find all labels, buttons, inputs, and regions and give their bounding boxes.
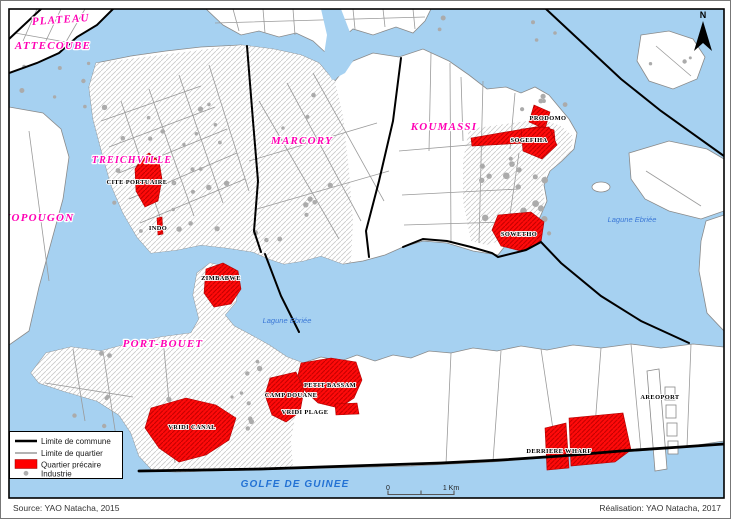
legend: Limite de commune Limite de quartier Qua… — [10, 432, 123, 479]
label-lagune-ebrie-east: Lagune Ebriée — [608, 215, 657, 224]
industry-dot — [486, 174, 491, 179]
industry-dot — [107, 353, 112, 358]
label-indo: INDO — [149, 225, 167, 232]
label-prodomo: PRODOMO — [530, 115, 567, 122]
industry-dot — [264, 238, 268, 242]
label-sowetho: SOWETHO — [501, 231, 537, 238]
industry-dot — [509, 161, 515, 167]
industry-dot — [520, 107, 524, 111]
industry-dot — [176, 226, 181, 231]
industry-dot — [516, 184, 521, 189]
industry-dot — [191, 190, 195, 194]
label-koumassi: KOUMASSI — [410, 121, 477, 133]
industry-dot — [199, 167, 203, 171]
industry-dot — [682, 59, 686, 63]
legend-industrie-swatch — [24, 471, 29, 476]
label-lagune-ebrie-west: Lagune Ebriée — [263, 316, 312, 325]
industry-dot — [198, 106, 203, 111]
map-page: Lagune Ebriée Lagune Ebriée GOLFE DE GUI… — [0, 0, 731, 519]
industry-dot — [121, 136, 126, 141]
industry-dot — [87, 62, 90, 65]
industry-dot — [303, 202, 308, 207]
industry-dot — [19, 88, 24, 93]
label-golfe-de-guinee: GOLFE DE GUINEE — [241, 479, 350, 490]
industry-dot — [256, 360, 260, 364]
industry-dot — [102, 105, 107, 110]
industry-dot — [535, 38, 539, 42]
quartier-derriere-wharf-west — [545, 423, 569, 470]
scale-max: 1 Km — [443, 485, 460, 492]
industry-dot — [166, 397, 171, 402]
industry-dot — [148, 136, 152, 140]
legend-commune-label: Limite de commune — [41, 437, 111, 446]
industry-dot — [541, 177, 548, 184]
industry-dot — [224, 181, 229, 186]
industry-dot — [277, 237, 282, 242]
industry-dot — [304, 213, 308, 217]
lagoon-islet — [592, 182, 610, 192]
industry-dot — [147, 116, 151, 120]
label-camp-douane: CAMP DOUANE — [265, 392, 318, 399]
label-treichville: TREICHVILLE — [92, 155, 172, 166]
label-aeroport: AREOPORT — [640, 394, 680, 401]
industry-dot — [53, 95, 56, 98]
industry-dot — [58, 66, 62, 70]
industry-dot — [541, 94, 546, 99]
industry-dot — [106, 395, 110, 399]
industry-dot — [281, 126, 284, 129]
industry-dot — [328, 183, 333, 188]
industry-dot — [218, 141, 222, 145]
industry-dot — [182, 143, 185, 146]
industry-dot — [247, 401, 251, 405]
label-vridi-canal: VRIDI CANAL — [168, 424, 216, 431]
industry-dot — [246, 426, 250, 430]
industry-dot — [441, 16, 446, 21]
industry-dot — [689, 56, 692, 59]
industry-dot — [311, 93, 316, 98]
industry-dot — [480, 164, 485, 169]
label-zimbabwe: ZIMBABWE — [201, 275, 241, 282]
industry-dot — [215, 226, 220, 231]
industry-dot — [257, 366, 262, 371]
industry-dot — [307, 196, 312, 201]
industry-dot — [305, 115, 309, 119]
industry-dot — [482, 215, 488, 221]
industry-dot — [207, 103, 211, 107]
industry-dot — [509, 157, 513, 161]
industry-dot — [172, 208, 175, 211]
label-derriere-wharf: DERRIERE WHARF — [526, 448, 591, 455]
industry-dot — [532, 200, 539, 207]
industry-dot — [553, 31, 557, 35]
industry-dot — [102, 424, 106, 428]
industry-dot — [240, 391, 243, 394]
industry-dot — [188, 221, 193, 226]
industry-dot — [479, 178, 484, 183]
industry-dot — [538, 205, 544, 211]
footer-realisation: Réalisation: YAO Natacha, 2017 — [599, 503, 721, 513]
industry-dot — [230, 395, 233, 398]
industry-dot — [248, 416, 253, 421]
label-sogefiha: SOGEFIHA — [511, 137, 548, 144]
industry-dot — [81, 79, 85, 83]
industry-dot — [533, 174, 538, 179]
map-canvas: Lagune Ebriée Lagune Ebriée GOLFE DE GUI… — [1, 1, 731, 519]
label-yopougon: YOPOUGON — [4, 212, 75, 224]
industry-dot — [195, 132, 199, 136]
label-port-bouet: PORT-BOUET — [123, 338, 204, 350]
label-petit-bassam: PETIT BASSAM — [304, 382, 356, 389]
legend-precaire-label: Quartier précaire — [41, 461, 102, 470]
industry-dot — [312, 200, 317, 205]
legend-industrie-label: Industrie — [41, 470, 72, 479]
label-cite-portuaire: CITE PORTUAIRE — [107, 179, 168, 186]
industry-dot — [139, 229, 143, 233]
quartier-vridi-plage — [335, 403, 359, 415]
industry-dot — [214, 123, 218, 127]
industry-dot — [438, 28, 442, 32]
legend-precaire-swatch — [15, 460, 37, 469]
industry-dot — [72, 413, 76, 417]
label-vridi-plage: VRIDI PLAGE — [282, 409, 329, 416]
label-marcory: MARCORY — [270, 135, 333, 147]
industry-dot — [160, 129, 165, 134]
industry-dot — [172, 181, 177, 186]
industry-dot — [116, 168, 121, 173]
industry-dot — [190, 167, 194, 171]
north-label: N — [700, 10, 707, 20]
footer-source: Source: YAO Natacha, 2015 — [13, 503, 120, 513]
industry-dot — [112, 201, 116, 205]
industry-dot — [516, 167, 521, 172]
industry-dot — [99, 351, 104, 356]
industry-dot — [649, 62, 652, 65]
industry-dot — [547, 231, 551, 235]
legend-quartier-label: Limite de quartier — [41, 449, 103, 458]
industry-dot — [83, 105, 87, 109]
industry-dot — [206, 185, 211, 190]
industry-dot — [531, 20, 535, 24]
industry-dot — [245, 371, 249, 375]
industry-dot — [503, 173, 510, 180]
label-attecoube: ATTECOUBE — [14, 40, 91, 52]
industry-dot — [563, 102, 568, 107]
industry-dot — [538, 99, 543, 104]
